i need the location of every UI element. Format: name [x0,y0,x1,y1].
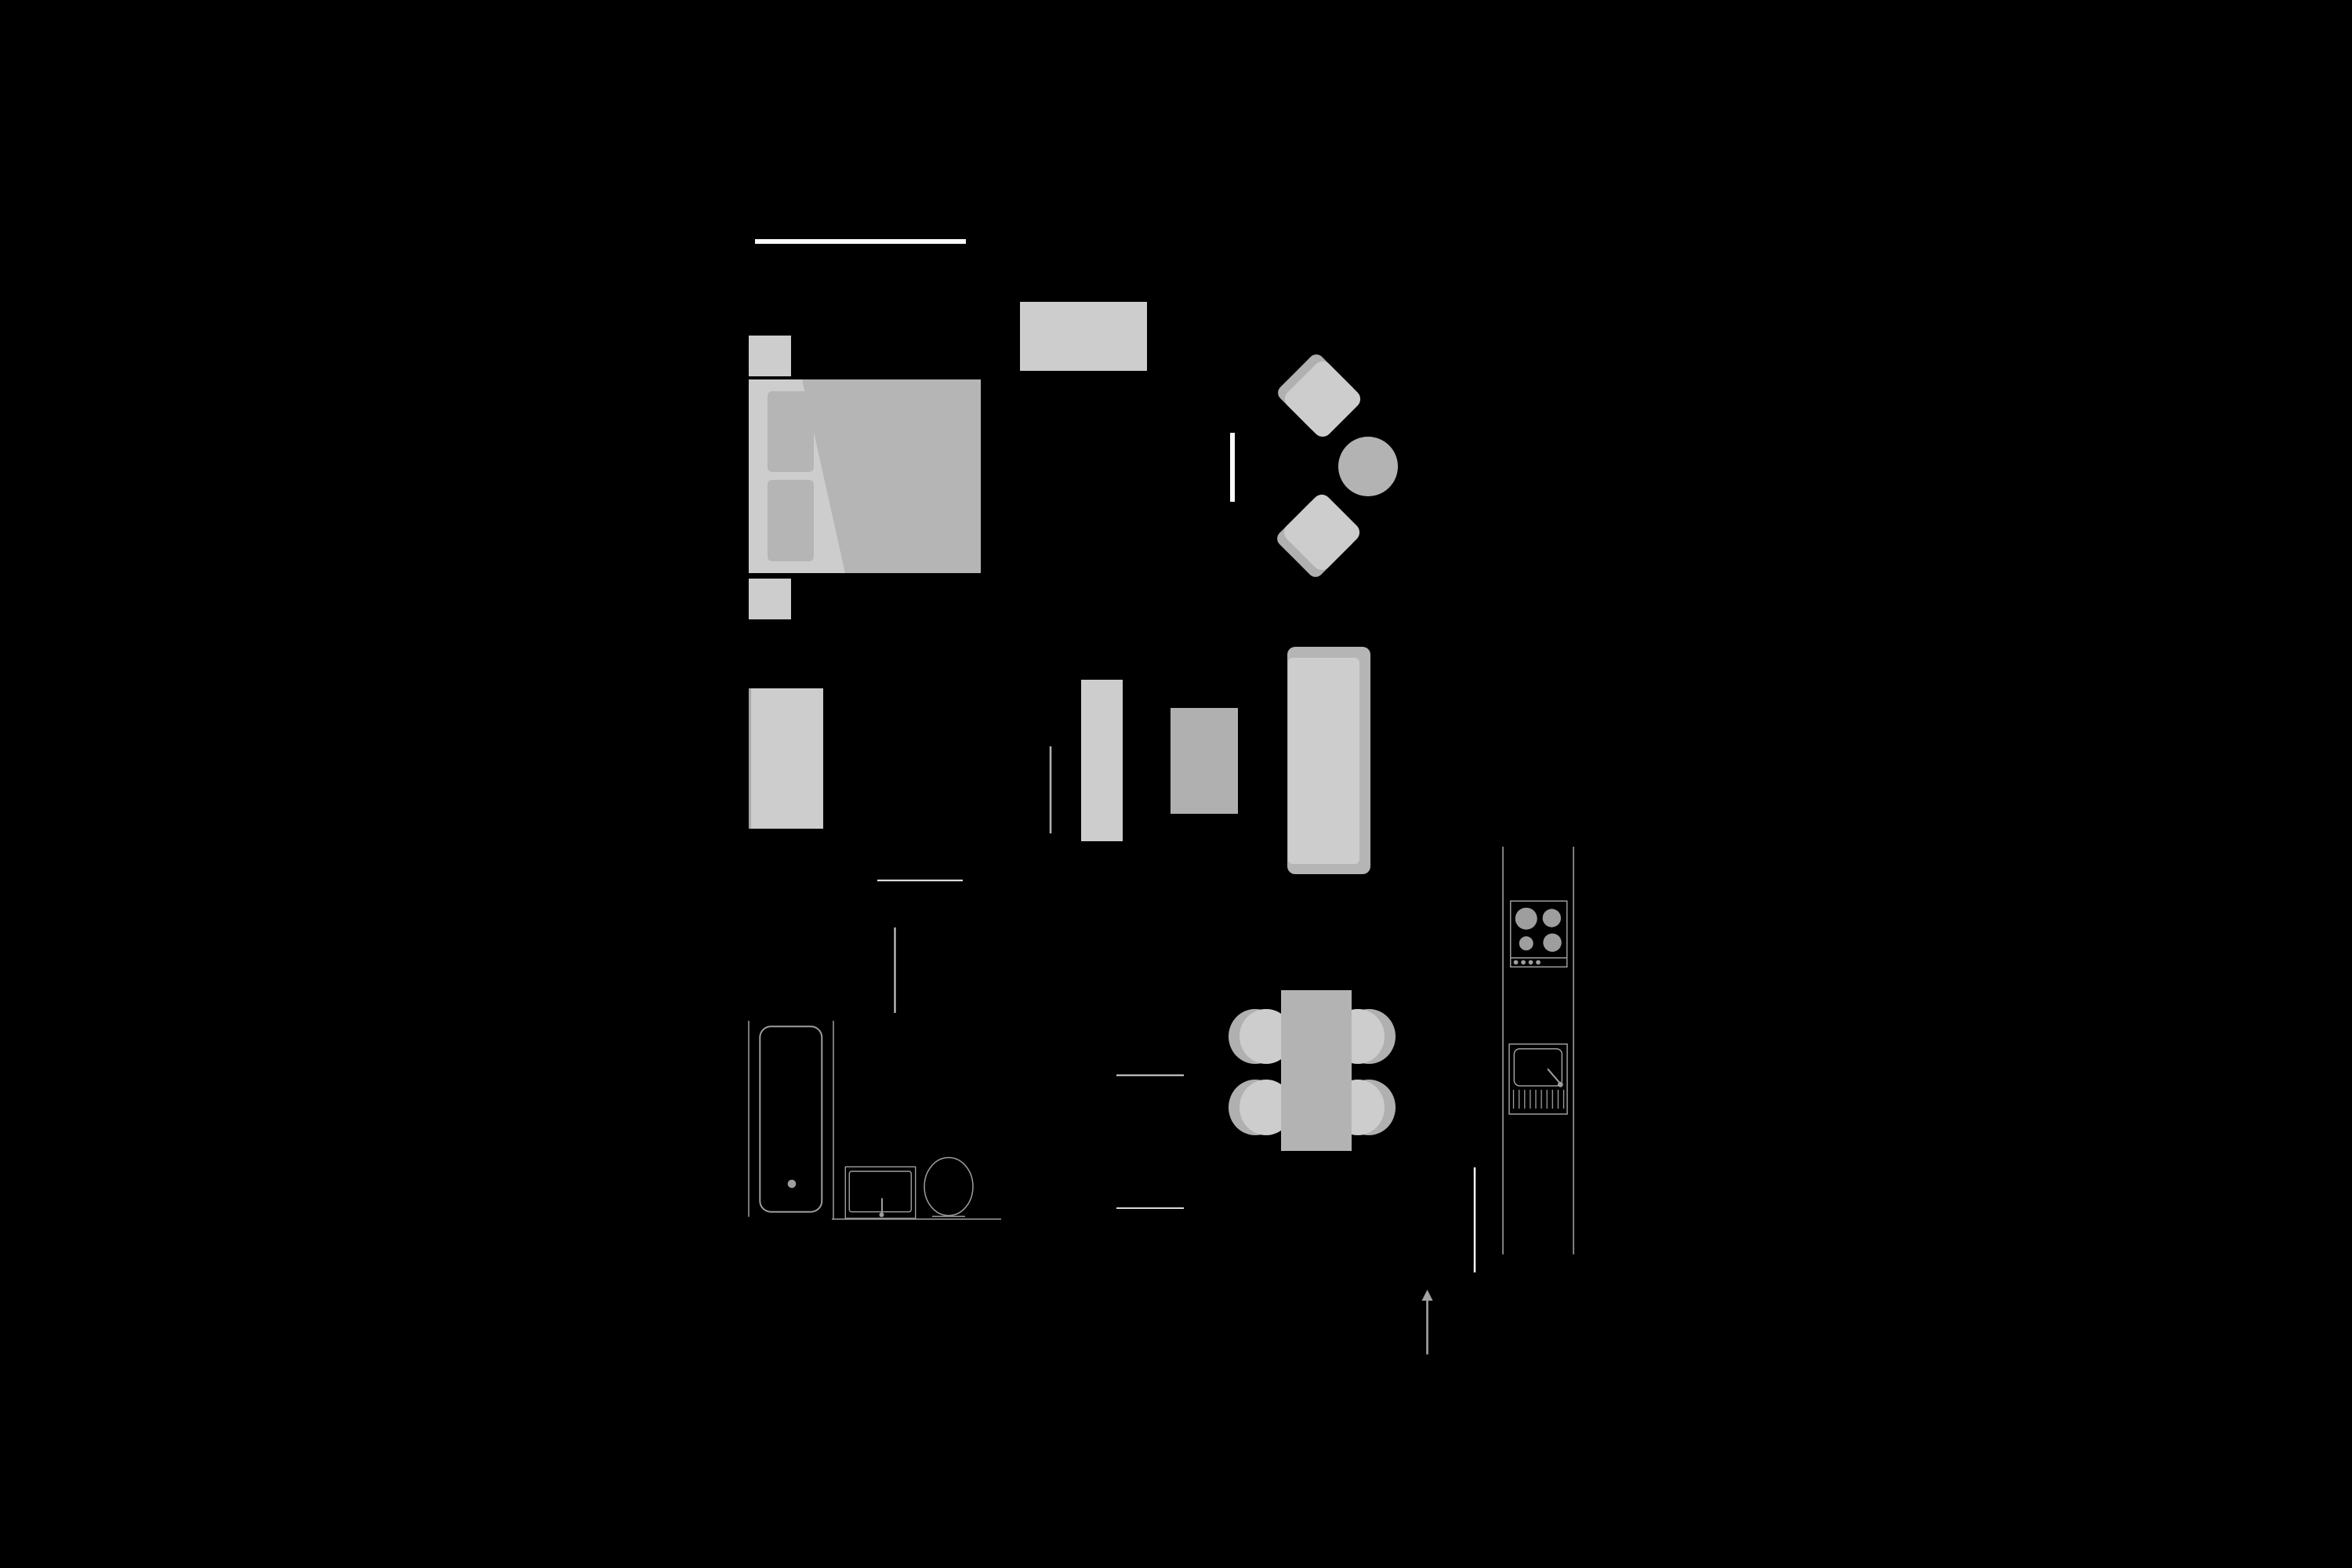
lounge-round-table [1338,437,1398,496]
stove-knob-3 [1529,960,1534,965]
floorplan-svg [0,0,2352,1568]
bed-pillow-top [768,391,814,472]
stove-burner-top-left [1515,908,1537,930]
bedroom-dresser [1020,302,1147,371]
stove-knob-2 [1521,960,1526,965]
wardrobe [749,688,823,829]
stove-burner-bottom-right [1543,934,1561,952]
kitchen-sink-faucet-dot [1558,1082,1563,1087]
nightstand-bottom [749,579,791,619]
bedroom-window-line [755,239,966,244]
stove-burner-bottom-left [1519,936,1534,950]
sideboard [1081,680,1123,841]
lounge-window-line [1230,433,1235,502]
coffee-table [1171,708,1238,814]
stove-burner-top-right [1543,909,1561,927]
wardrobe-edge [749,688,751,829]
sofa-seat [1288,658,1359,864]
bathtub-drain [788,1180,797,1189]
stove-knob-4 [1536,960,1541,965]
bed-pillow-bottom [768,480,814,561]
floorplan [0,0,2352,1568]
bath-sink-faucet-dot [880,1213,884,1218]
stove-knob-1 [1514,960,1519,965]
nightstand-top [749,336,791,376]
dining-table [1281,990,1352,1151]
